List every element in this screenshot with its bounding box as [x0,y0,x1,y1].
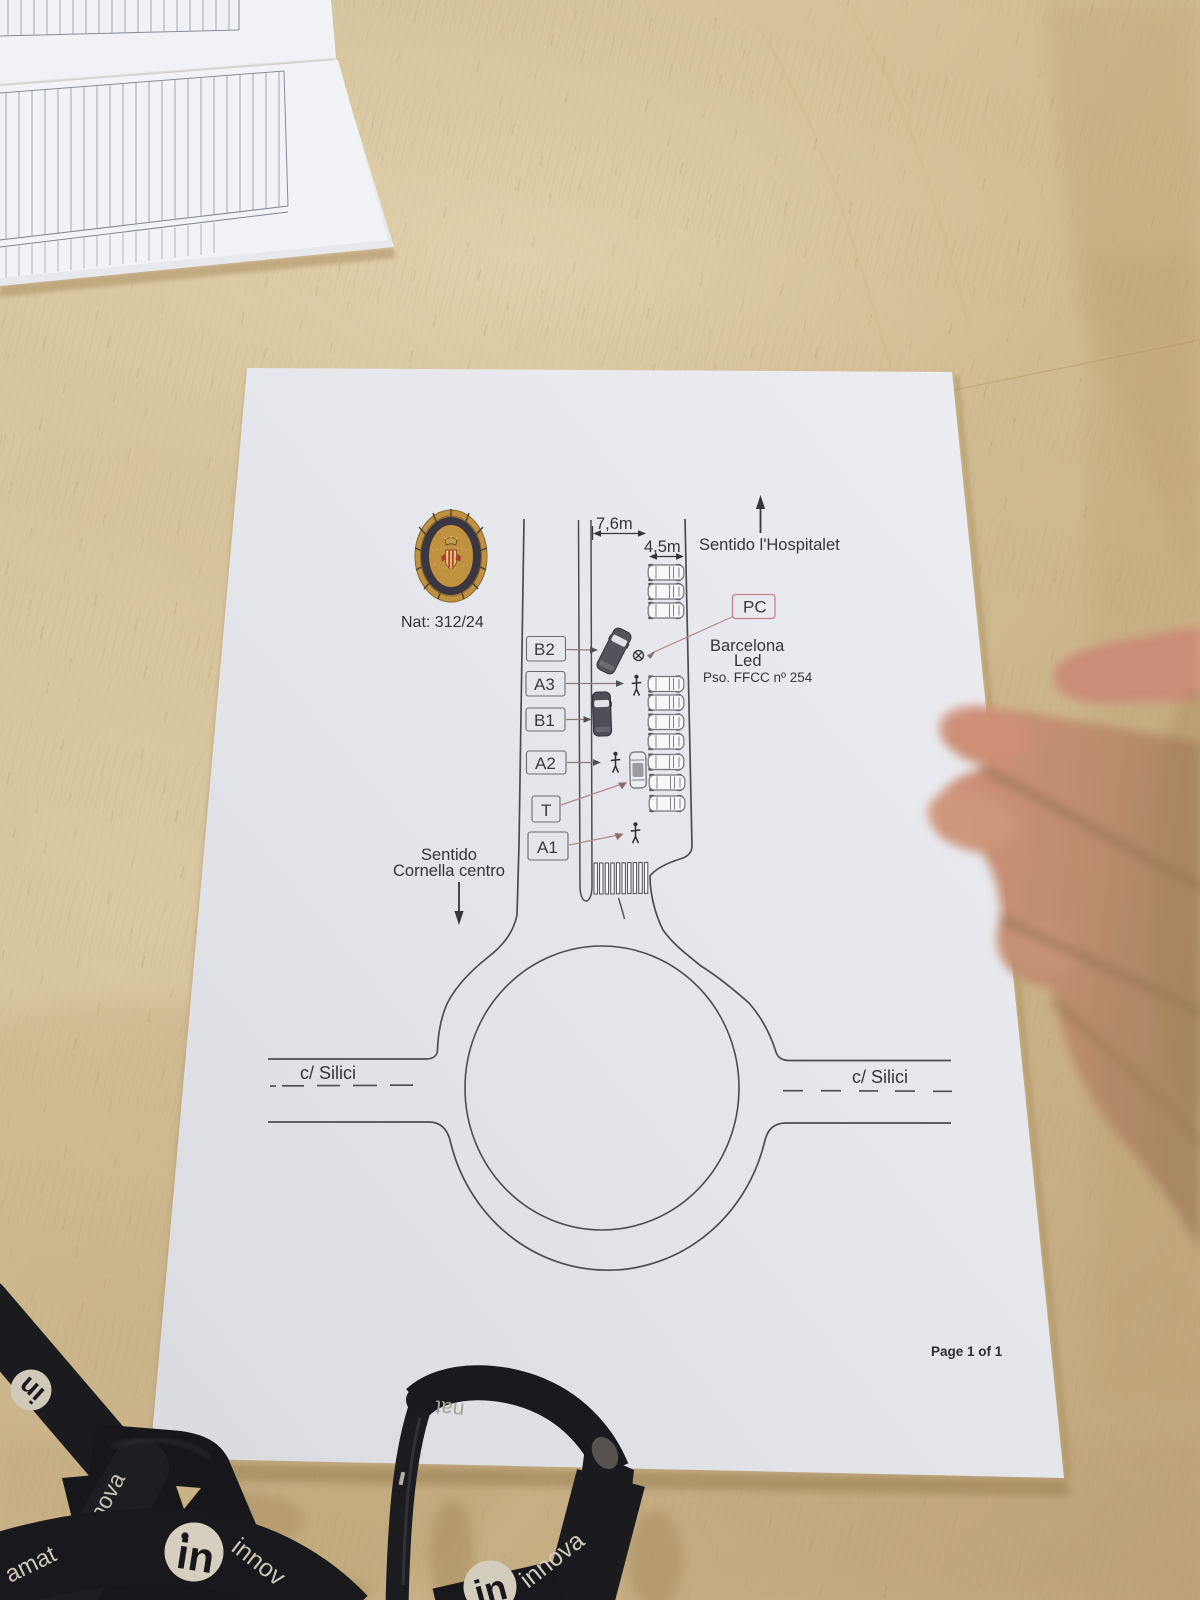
svg-text:Nat: 312/24: Nat: 312/24 [401,614,484,631]
svg-text:c/ Silici: c/ Silici [852,1067,908,1087]
svg-text:PC: PC [743,598,767,617]
svg-text:Led: Led [734,652,762,670]
svg-text:Pso. FFCC nº 254: Pso. FFCC nº 254 [703,670,813,685]
svg-text:Cornella centro: Cornella centro [393,862,505,880]
svg-text:T: T [541,801,551,820]
svg-text:Sentido l'Hospitalet: Sentido l'Hospitalet [699,536,840,554]
svg-text:nat: nat [434,1395,466,1421]
svg-text:Page 1 of 1: Page 1 of 1 [931,1344,1003,1359]
svg-text:c/ Silici: c/ Silici [300,1063,356,1083]
svg-text:4,5m: 4,5m [644,538,681,556]
svg-text:7,6m: 7,6m [596,515,633,533]
svg-text:B1: B1 [534,711,555,730]
svg-text:A2: A2 [535,754,556,773]
svg-text:A3: A3 [534,675,555,694]
svg-text:B2: B2 [534,640,555,659]
svg-text:A1: A1 [537,838,558,857]
svg-text:in: in [174,1530,218,1582]
